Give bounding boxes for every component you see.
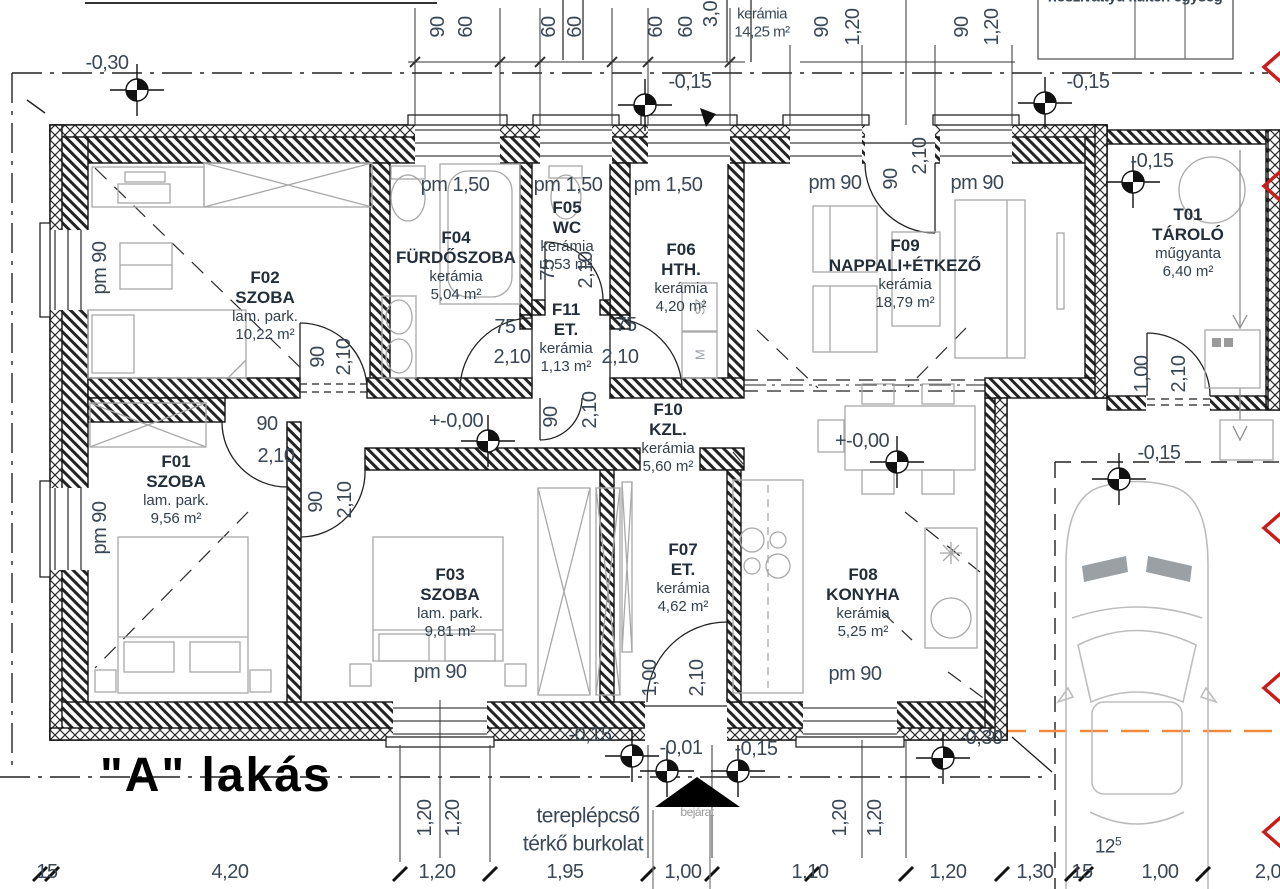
room-name: KONYHA <box>826 585 900 605</box>
room-area: 1,13 m² <box>539 358 592 376</box>
window-label-f05: pm 1,50 <box>534 175 603 195</box>
door-dim-f09-h: 2,10 <box>910 138 930 175</box>
room-finish: kerámia <box>641 440 694 458</box>
room-id: F11 <box>539 300 592 320</box>
window-label-f08: pm 90 <box>828 664 881 684</box>
door-dim-entry-h: 2,10 <box>687 660 707 697</box>
top-dim: 60 <box>456 16 476 37</box>
room-id: F10 <box>641 400 694 420</box>
level-label: -0,15 <box>734 739 777 759</box>
level-label: -0,30 <box>85 53 128 73</box>
room-finish: műgyanta <box>1152 245 1224 263</box>
room-label-f02: F02 SZOBA lam. park. 10,22 m² <box>232 268 298 343</box>
room-finish: lam. park. <box>417 605 483 623</box>
door-dim-f11l-h: 2,10 <box>494 347 531 367</box>
door-dim-f01-h: 2,10 <box>258 446 295 466</box>
room-finish: lam. park. <box>232 308 298 326</box>
vertical-dim: 1,20 <box>415 800 435 837</box>
bottom-dim: 1,00 <box>665 862 702 882</box>
room-name: SZOBA <box>232 288 298 308</box>
bottom-dim: 15 <box>36 862 57 882</box>
level-label: -0,01 <box>659 738 702 758</box>
window-label-f04: pm 1,50 <box>421 175 490 195</box>
door-dim-f10-h: 2,10 <box>580 392 600 429</box>
room-name: KZL. <box>641 420 694 440</box>
room-area: 18,79 m² <box>829 294 981 312</box>
room-area: 5,25 m² <box>826 623 900 641</box>
bottom-dim: 1,95 <box>547 862 584 882</box>
top-dim: 90 <box>812 16 832 37</box>
door-dim-f03-h: 2,10 <box>335 482 355 519</box>
room-label-f11: F11 ET. kerámia 1,13 m² <box>539 300 592 375</box>
car-dim-main: 12 <box>1095 837 1115 858</box>
top-dim: 90 <box>952 16 972 37</box>
top-dim: 1,20 <box>843 9 863 46</box>
room-area: 9,56 m² <box>143 510 209 528</box>
top-dim: 3,0 <box>701 1 721 27</box>
car-dim-sup: 5 <box>1115 834 1121 848</box>
door-dim-f11r-h: 2,10 <box>602 347 639 367</box>
entrance-label: bejárat <box>680 806 713 818</box>
vertical-dim: 1,20 <box>830 800 850 837</box>
bottom-dim: 1,00 <box>1142 862 1179 882</box>
top-dim: 60 <box>565 16 585 37</box>
floor-plan-sheet: kerámia 14,25 m² hőszivattyú kültéri egy… <box>0 0 1280 889</box>
bottom-dim: 1,30 <box>1017 862 1054 882</box>
top-dim: 60 <box>676 16 696 37</box>
level-label: -0,15 <box>1137 443 1180 463</box>
vertical-dim: 1,20 <box>443 800 463 837</box>
door-dim-f09-w: 90 <box>881 168 901 189</box>
room-name: SZOBA <box>143 472 209 492</box>
room-id: F02 <box>232 268 298 288</box>
door-dim-f01-w: 90 <box>256 414 277 434</box>
bottom-dim: 1,20 <box>930 862 967 882</box>
window-label-f06: pm 1,50 <box>634 175 703 195</box>
level-label: -0,15 <box>1066 72 1109 92</box>
level-label: +-0,00 <box>429 411 483 431</box>
room-area: 9,81 m² <box>417 623 483 641</box>
room-name: HTH. <box>654 260 707 280</box>
heat-pump-label: hőszivattyú kültéri egység <box>1048 0 1223 5</box>
room-area: 10,22 m² <box>232 326 298 344</box>
door-dim-wc-h: 2,10 <box>576 252 596 289</box>
room-name: NAPPALI+ÉTKEZŐ <box>829 256 981 276</box>
room-id: F04 <box>396 228 516 248</box>
door-dim-entry-w: 1,00 <box>640 660 660 697</box>
door-dim-wc-w: 75 <box>538 259 558 280</box>
room-id: F03 <box>417 565 483 585</box>
car-dimension: 125 <box>1095 835 1121 856</box>
room-name: SZOBA <box>417 585 483 605</box>
label-layer: kerámia 14,25 m² hőszivattyú kültéri egy… <box>0 0 1280 889</box>
washer-tag: M <box>694 350 707 360</box>
room-finish: kerámia <box>539 340 592 358</box>
room-name: TÁROLÓ <box>1152 225 1224 245</box>
room-name: FÜRDŐSZOBA <box>396 248 516 268</box>
top-dim: 90 <box>428 16 448 37</box>
room-label-f09: F09 NAPPALI+ÉTKEZŐ kerámia 18,79 m² <box>829 236 981 311</box>
level-label: -0,15 <box>1130 151 1173 171</box>
door-dim-f03-w: 90 <box>306 491 326 512</box>
room-finish: kerámia <box>654 280 707 298</box>
vertical-dim: 1,20 <box>865 800 885 837</box>
bottom-dim: 2,0 <box>1255 862 1280 882</box>
room-finish: kerámia <box>826 605 900 623</box>
room-id: F05 <box>540 198 593 218</box>
level-label: -0,30 <box>959 728 1002 748</box>
dryer-tag: SZ <box>694 299 707 315</box>
door-dim-t01-w: 1,00 <box>1132 356 1152 393</box>
room-area: 6,40 m² <box>1152 263 1224 281</box>
apartment-title: "A" lakás <box>100 748 332 803</box>
level-label: -0,15 <box>668 72 711 92</box>
terrain-steps-label: tereplépcső <box>536 806 639 827</box>
level-label: -0,15 <box>568 725 611 745</box>
room-label-f07: F07 ET. kerámia 4,62 m² <box>656 540 709 615</box>
window-label-f01: pm 90 <box>90 501 110 554</box>
room-finish: kerámia <box>656 580 709 598</box>
door-dim-f02-w: 90 <box>308 346 328 367</box>
top-room-finish: kerámia <box>737 7 787 22</box>
top-dim: 60 <box>646 16 666 37</box>
room-id: F07 <box>656 540 709 560</box>
room-finish: kerámia <box>396 268 516 286</box>
room-id: T01 <box>1152 205 1224 225</box>
room-id: F01 <box>143 452 209 472</box>
room-area: 5,60 m² <box>641 458 694 476</box>
window-label-f09b: pm 90 <box>950 173 1003 193</box>
top-room-area: 14,25 m² <box>734 25 789 40</box>
room-area: 4,62 m² <box>656 598 709 616</box>
room-area: 5,04 m² <box>396 286 516 304</box>
window-label-f02: pm 90 <box>90 241 110 294</box>
door-dim-f10-w: 90 <box>541 406 561 427</box>
bottom-dim: 4,20 <box>212 862 249 882</box>
window-label-f03: pm 90 <box>413 662 466 682</box>
room-id: F06 <box>654 240 707 260</box>
bottom-dim: 1,20 <box>419 862 456 882</box>
room-label-f10: F10 KZL. kerámia 5,60 m² <box>641 400 694 475</box>
room-name: ET. <box>539 320 592 340</box>
room-finish: lam. park. <box>143 492 209 510</box>
paving-label: térkő burkolat <box>523 834 643 855</box>
room-label-t01: T01 TÁROLÓ műgyanta 6,40 m² <box>1152 205 1224 280</box>
room-id: F09 <box>829 236 981 256</box>
bottom-dim: 15 <box>1071 862 1092 882</box>
window-label-f09a: pm 90 <box>808 173 861 193</box>
room-name: WC <box>540 218 593 238</box>
door-dim-f11l-w: 75 <box>494 317 515 337</box>
top-dim: 60 <box>539 16 559 37</box>
room-label-f01: F01 SZOBA lam. park. 9,56 m² <box>143 452 209 527</box>
door-dim-t01-h: 2,10 <box>1169 356 1189 393</box>
room-label-f08: F08 KONYHA kerámia 5,25 m² <box>826 565 900 640</box>
bottom-dim: 1,10 <box>792 862 829 882</box>
room-name: ET. <box>656 560 709 580</box>
level-label: +-0,00 <box>835 431 889 451</box>
room-id: F08 <box>826 565 900 585</box>
top-dim: 1,20 <box>982 9 1002 46</box>
door-dim-f11r-w: 75 <box>615 315 636 335</box>
room-label-f03: F03 SZOBA lam. park. 9,81 m² <box>417 565 483 640</box>
door-dim-f02-h: 2,10 <box>334 339 354 376</box>
room-finish: kerámia <box>829 276 981 294</box>
room-label-f04: F04 FÜRDŐSZOBA kerámia 5,04 m² <box>396 228 516 303</box>
